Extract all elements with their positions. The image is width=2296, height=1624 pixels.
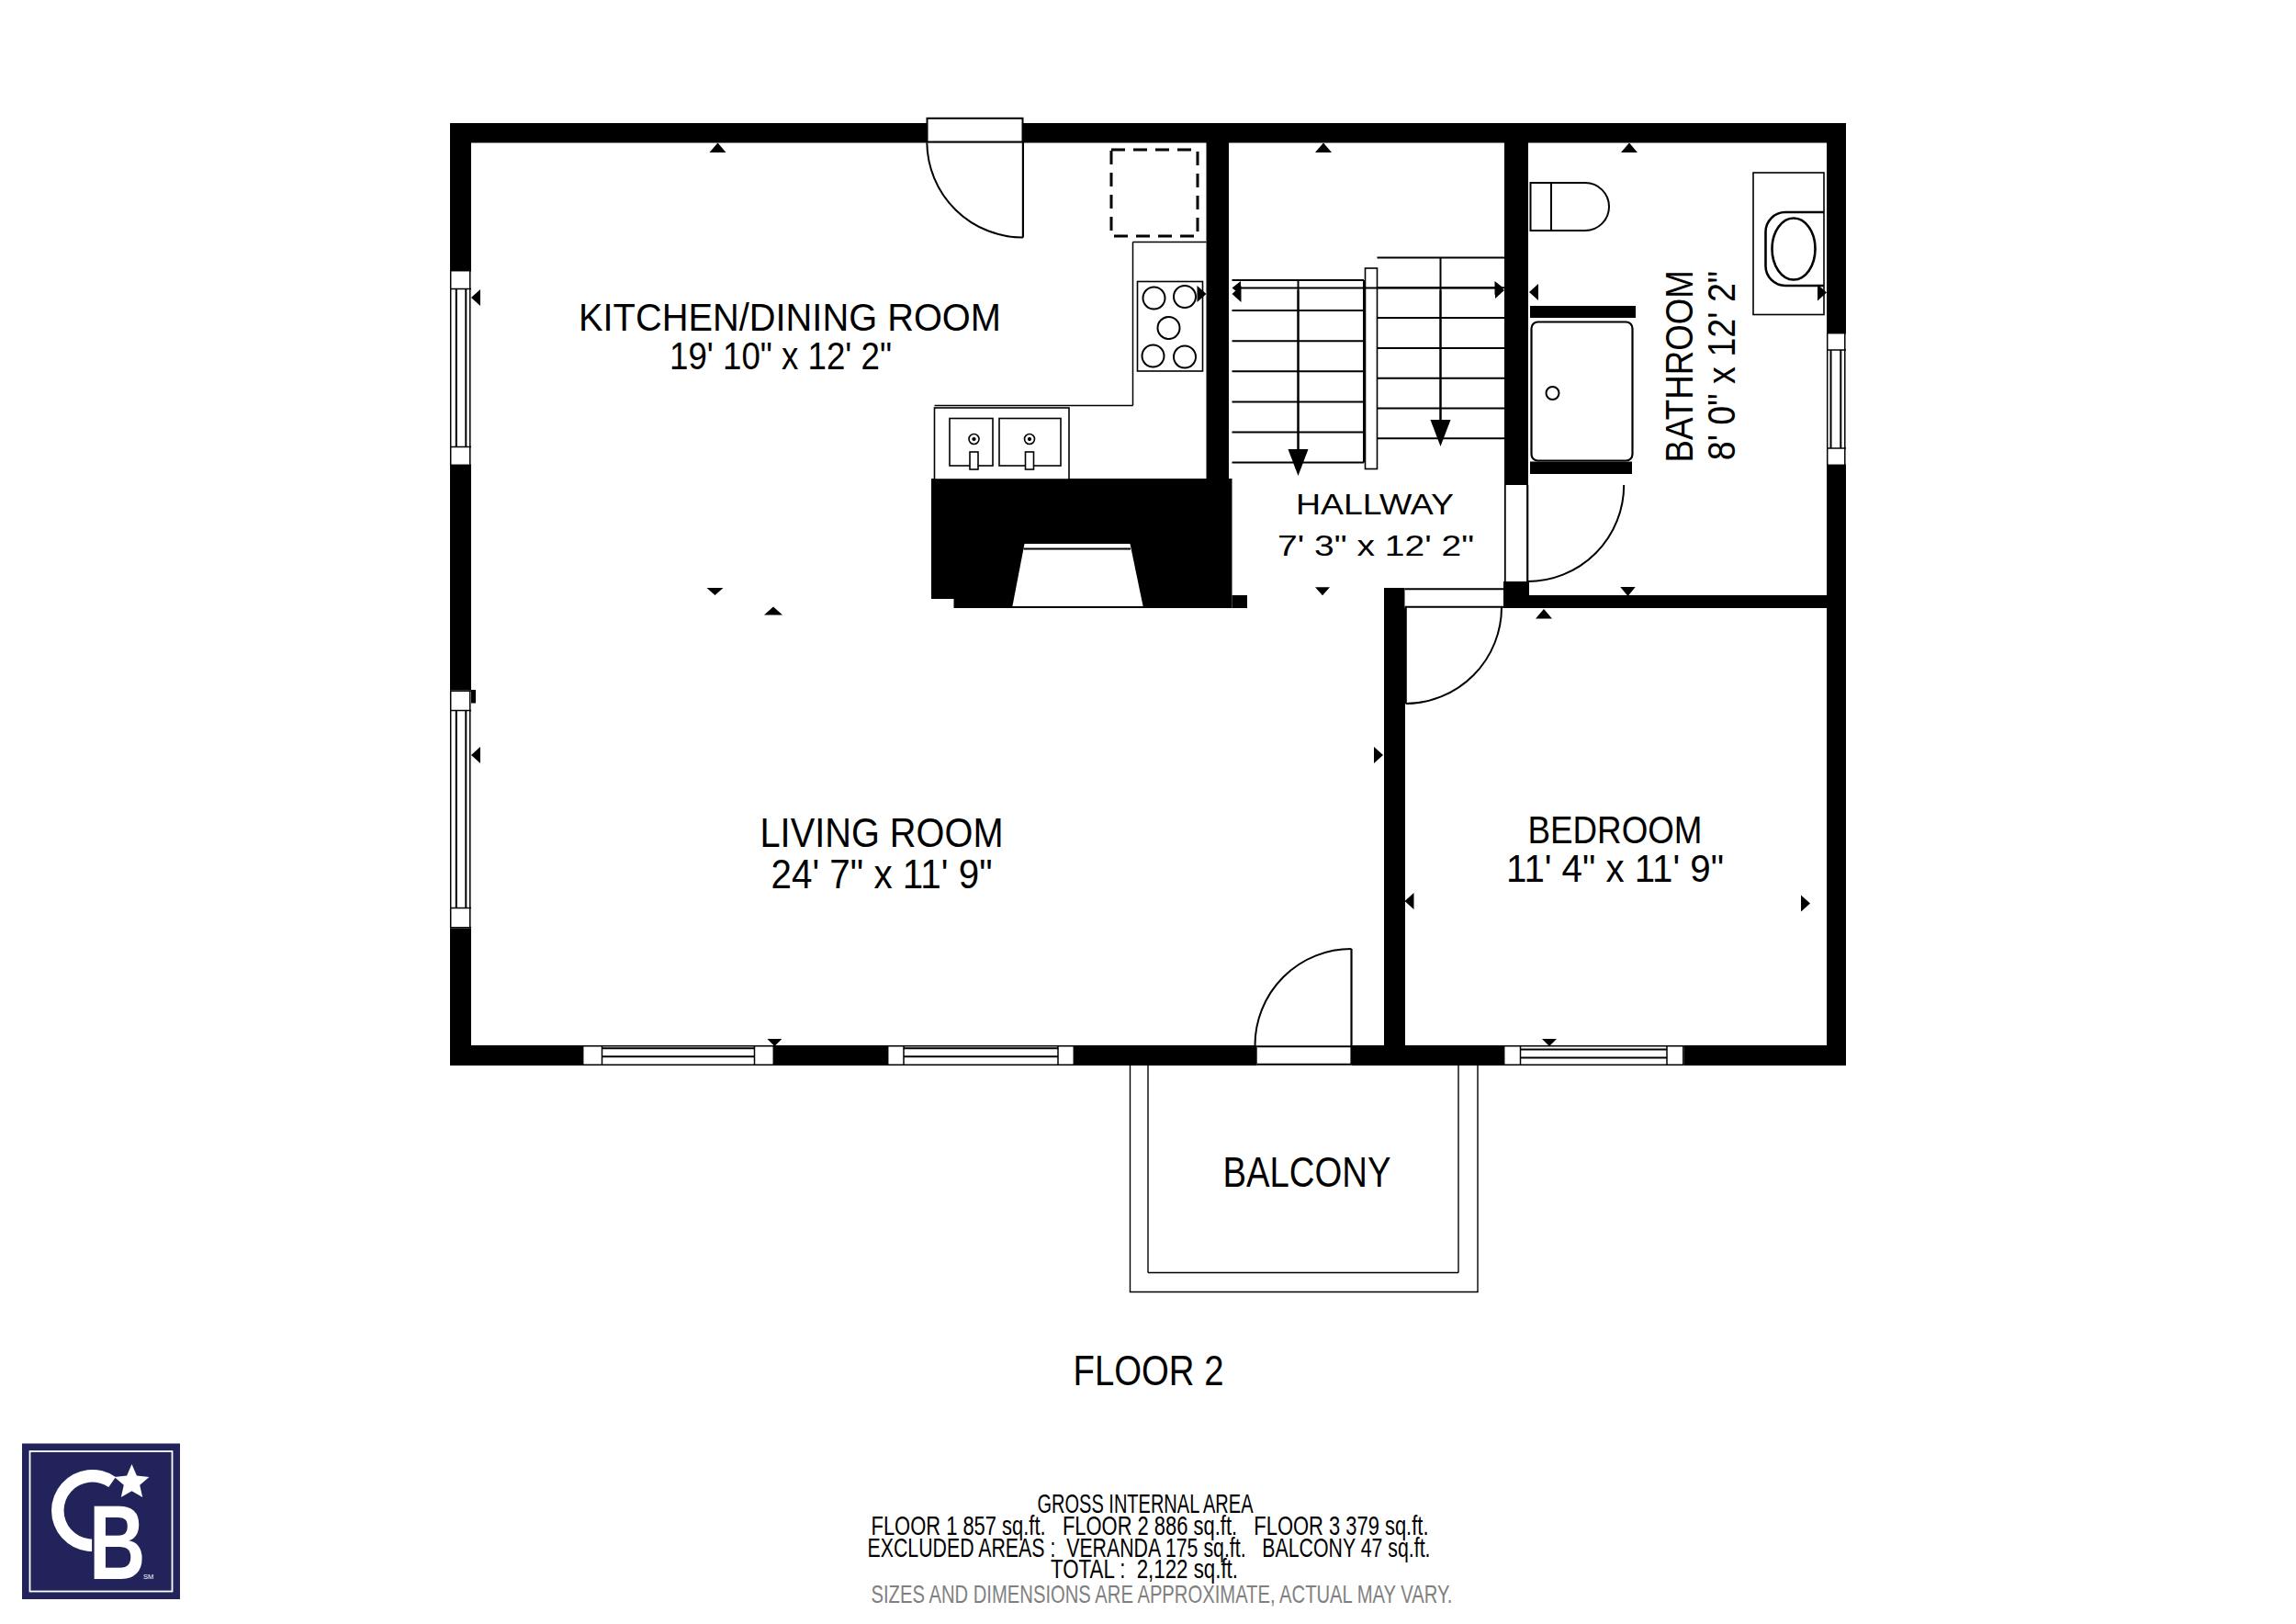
svg-text:BALCONY: BALCONY xyxy=(1223,1147,1391,1196)
svg-text:SM: SM xyxy=(143,1573,153,1581)
svg-text:B: B xyxy=(89,1483,145,1600)
svg-text:24' 7" x 11' 9": 24' 7" x 11' 9" xyxy=(771,851,993,897)
svg-text:7' 3" x 12' 2": 7' 3" x 12' 2" xyxy=(1277,530,1474,562)
svg-text:BATHROOM: BATHROOM xyxy=(1658,270,1701,463)
svg-text:HALLWAY: HALLWAY xyxy=(1296,489,1454,521)
svg-text:BEDROOM: BEDROOM xyxy=(1528,807,1703,851)
svg-text:19' 10" x 12' 2": 19' 10" x 12' 2" xyxy=(670,333,892,378)
svg-text:11' 4" x 11' 9": 11' 4" x 11' 9" xyxy=(1506,846,1724,890)
svg-text:8' 0" x 12' 2": 8' 0" x 12' 2" xyxy=(1700,271,1743,460)
svg-text:TOTAL : 2,122 sq.ft.: TOTAL : 2,122 sq.ft. xyxy=(1051,1553,1238,1584)
svg-text:FLOOR 2: FLOOR 2 xyxy=(1074,1346,1224,1394)
svg-text:LIVING ROOM: LIVING ROOM xyxy=(760,809,1004,856)
svg-text:KITCHEN/DINING ROOM: KITCHEN/DINING ROOM xyxy=(579,295,1001,339)
svg-text:SIZES AND DIMENSIONS ARE APPRO: SIZES AND DIMENSIONS ARE APPROXIMATE, AC… xyxy=(872,1580,1453,1608)
